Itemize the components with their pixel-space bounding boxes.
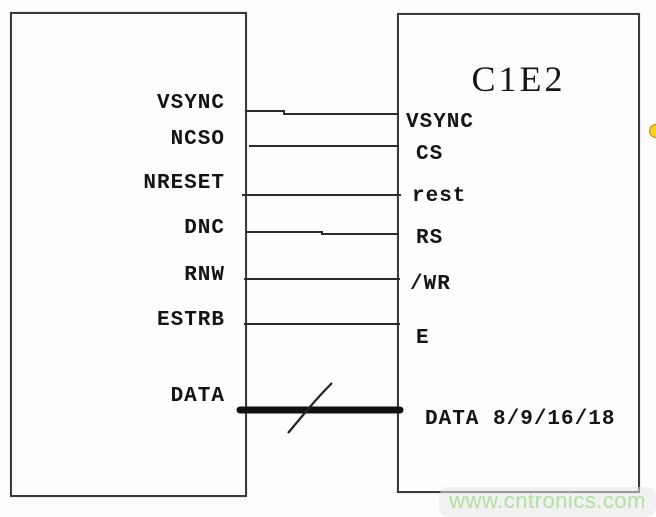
pin-label-rs: RS (416, 229, 443, 249)
marker-dot (649, 124, 656, 138)
wire-dnc-rs (245, 232, 399, 234)
pin-label-rnw: RNW (40, 266, 225, 286)
pin-label-data-bus: DATA 8/9/16/18 (425, 410, 615, 430)
pin-label-ncso: NCSO (40, 130, 225, 150)
pin-label-data-left: DATA (40, 387, 225, 407)
pin-label-vsync-right: VSYNC (406, 113, 474, 133)
pin-label-e: E (416, 329, 430, 349)
pin-label-estrb: ESTRB (40, 311, 225, 331)
wire-vsync (245, 111, 399, 114)
right-block-title: C1E2 (397, 58, 640, 100)
pin-label-dnc: DNC (40, 219, 225, 239)
watermark: www.cntronics.com (439, 487, 656, 517)
pin-label-cs: CS (416, 145, 443, 165)
schematic-canvas: C1E2 VSYNC NCSO NRESET DNC RNW ESTRB DAT… (0, 0, 656, 517)
pin-label-nreset: NRESET (40, 174, 225, 194)
pin-label-wr: /WR (410, 275, 451, 295)
pin-label-rest: rest (412, 187, 466, 207)
pin-label-vsync-left: VSYNC (40, 94, 225, 114)
